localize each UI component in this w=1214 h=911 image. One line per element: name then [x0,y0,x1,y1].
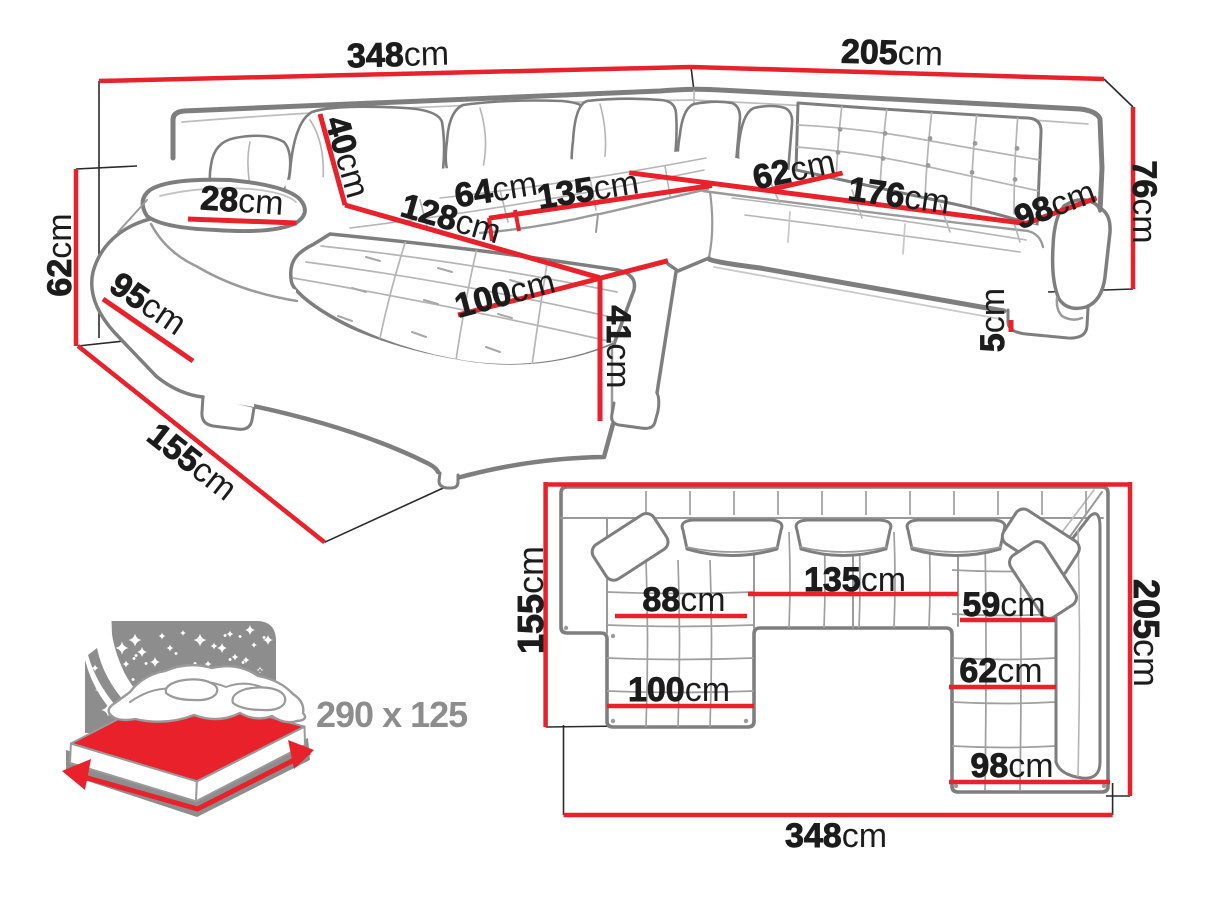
svg-text:155cm: 155cm [510,546,551,654]
svg-text:98cm: 98cm [970,747,1053,785]
svg-text:100cm: 100cm [628,671,730,709]
svg-text:76cm: 76cm [1125,160,1163,243]
svg-text:59cm: 59cm [962,586,1045,624]
svg-text:62cm: 62cm [959,652,1042,690]
svg-text:348cm: 348cm [346,35,449,76]
svg-text:290 x 125: 290 x 125 [316,694,468,735]
svg-text:62cm: 62cm [41,213,79,296]
svg-text:205cm: 205cm [1127,579,1168,687]
svg-text:205cm: 205cm [840,33,943,74]
svg-text:135cm: 135cm [804,561,906,599]
svg-text:41cm: 41cm [599,305,637,388]
svg-text:88cm: 88cm [642,581,725,619]
svg-text:28cm: 28cm [199,179,285,223]
svg-text:348cm: 348cm [785,817,887,855]
svg-text:5cm: 5cm [974,288,1012,352]
